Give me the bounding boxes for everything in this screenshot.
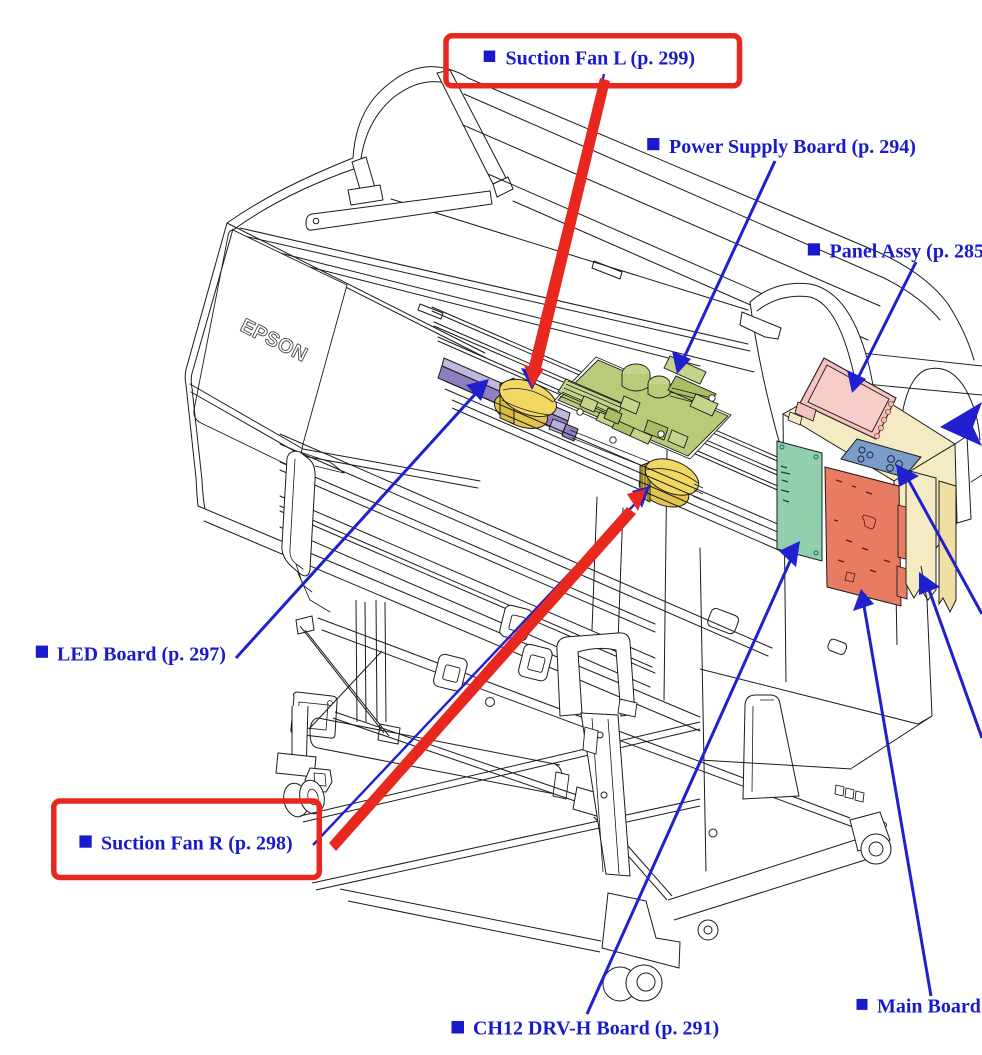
svg-text:LED Board (p. 297): LED Board (p. 297) — [57, 644, 226, 666]
svg-text:Main Board: Main Board — [877, 996, 981, 1018]
svg-text:Panel Assy (p. 285): Panel Assy (p. 285) — [830, 241, 982, 263]
svg-text:Suction Fan L (p. 299): Suction Fan L (p. 299) — [506, 48, 695, 70]
svg-text:CH12 DRV-H Board (p. 291): CH12 DRV-H Board (p. 291) — [473, 1018, 719, 1040]
svg-text:Power Supply Board (p. 294): Power Supply Board (p. 294) — [669, 136, 916, 158]
svg-text:Suction Fan R (p. 298): Suction Fan R (p. 298) — [101, 833, 293, 855]
